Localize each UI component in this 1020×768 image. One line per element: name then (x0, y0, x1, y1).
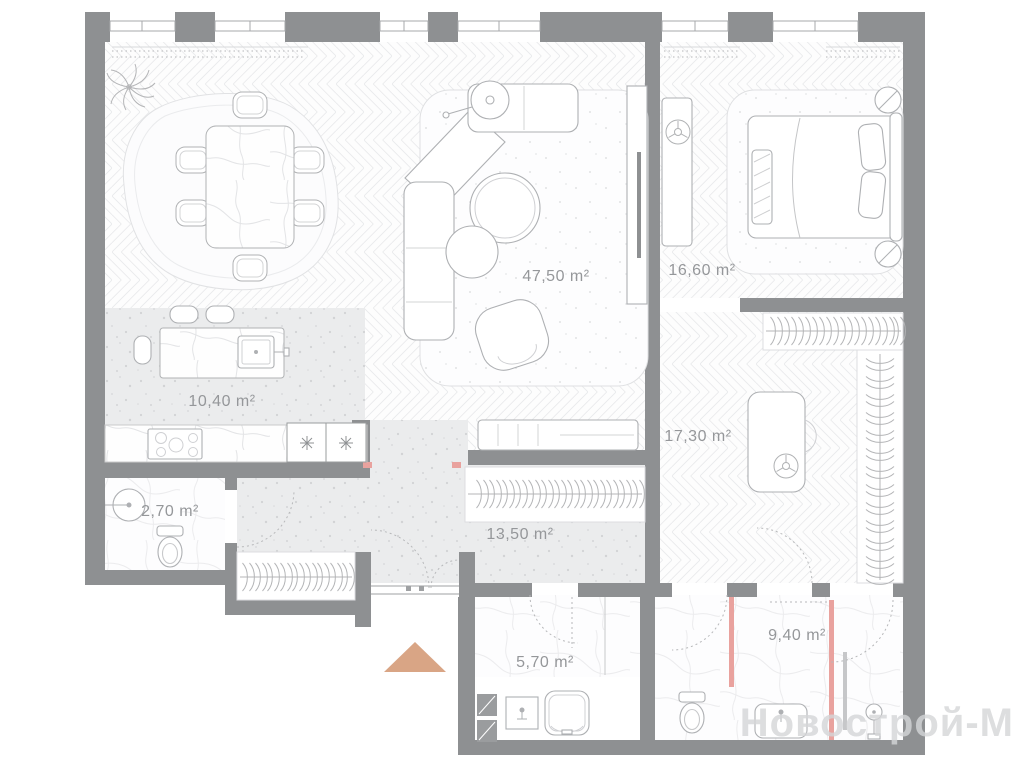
cooktop (148, 429, 202, 459)
sideboard (478, 420, 638, 450)
pink-wall-marker (452, 462, 461, 468)
nightstand (875, 87, 901, 113)
window (662, 21, 728, 31)
vanity-table (662, 98, 692, 246)
area-label-wc: 2,70 m² (141, 503, 199, 520)
area-label-bathroom: 5,70 m² (516, 654, 574, 671)
dining-chair (290, 147, 324, 173)
dining-chair (176, 147, 210, 173)
toilet (157, 526, 183, 567)
area-label-hallway: 13,50 m² (486, 526, 553, 543)
floor-plan: 47,50 m² 16,60 m² 17,30 m² 10,40 m² 13,5… (0, 0, 1020, 768)
tv-icon (637, 152, 641, 258)
tv-console (627, 86, 647, 304)
dining-table (206, 126, 294, 248)
hallway-floor (365, 420, 468, 583)
washing-machine (545, 691, 589, 735)
area-label-living: 47,50 m² (522, 268, 589, 285)
window (380, 21, 428, 31)
pillow (858, 171, 887, 219)
toilet (679, 692, 705, 733)
pillow (858, 123, 887, 171)
appliance-star-icon (339, 436, 353, 450)
dining-chair (233, 255, 267, 281)
window (215, 21, 285, 31)
fridge-cabinets (287, 423, 366, 462)
wardrobe-rail (465, 467, 645, 522)
bar-stool (134, 336, 151, 364)
window (773, 21, 858, 31)
area-label-master-bath: 9,40 m² (768, 627, 826, 644)
dining-chair (233, 92, 267, 118)
coffee-table (446, 226, 498, 278)
bed (748, 113, 902, 241)
pink-wall-marker (363, 462, 372, 468)
appliance-star-icon (300, 436, 314, 450)
window (458, 21, 540, 31)
bar-stool (206, 306, 234, 323)
area-label-dressing: 17,30 m² (664, 428, 731, 445)
dining-chair (290, 200, 324, 226)
bed-throw (752, 150, 772, 224)
bar-stool (170, 306, 198, 323)
window (110, 21, 175, 31)
wardrobe-rail (857, 350, 903, 584)
watermark: Новострой-М (740, 701, 1014, 745)
washbasin (506, 697, 538, 729)
dining-chair (176, 200, 210, 226)
headboard (890, 113, 902, 241)
wardrobe-rail (237, 552, 355, 600)
floor-plan-page: 47,50 m² 16,60 m² 17,30 m² 10,40 m² 13,5… (0, 0, 1020, 768)
glass-partition (729, 597, 734, 687)
entrance-arrow (384, 642, 446, 672)
area-label-kitchen: 10,40 m² (188, 393, 255, 410)
area-label-bedroom: 16,60 m² (668, 262, 735, 279)
nightstand (875, 241, 901, 267)
wardrobe-rail (763, 313, 905, 350)
